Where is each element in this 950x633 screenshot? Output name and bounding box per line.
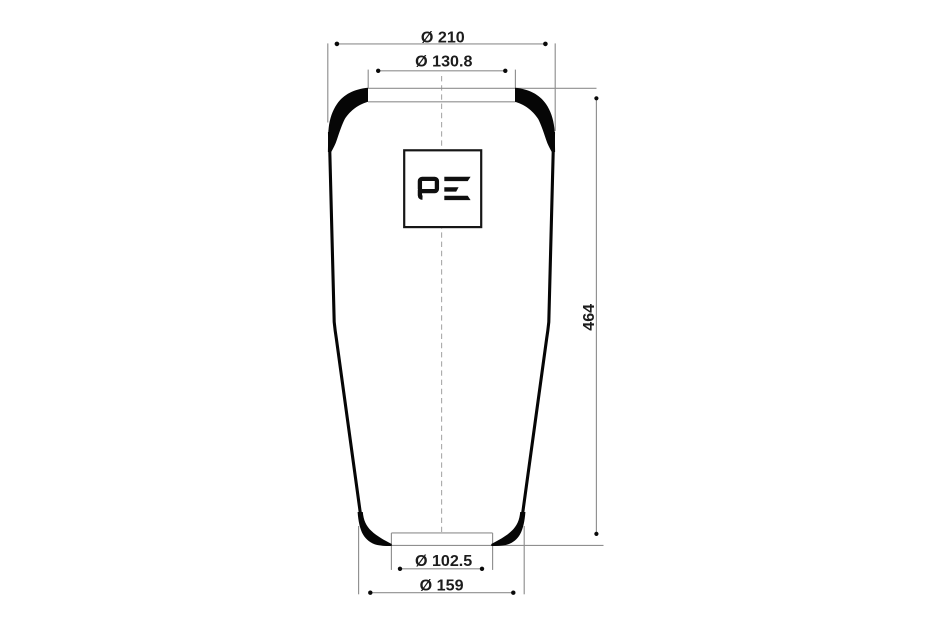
svg-text:Ø 130.8: Ø 130.8 bbox=[415, 52, 472, 70]
svg-text:464: 464 bbox=[580, 304, 598, 331]
svg-text:Ø 159: Ø 159 bbox=[420, 577, 464, 595]
svg-text:Ø 210: Ø 210 bbox=[421, 29, 465, 47]
svg-text:Ø 102.5: Ø 102.5 bbox=[415, 552, 472, 570]
